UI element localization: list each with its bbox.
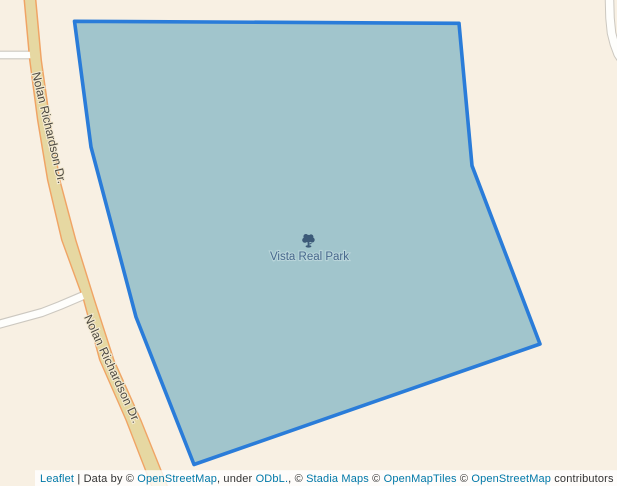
svg-text:Leaflet | Data by © OpenStreet: Leaflet | Data by © OpenStreetMap, under… [40,473,614,485]
svg-text:Vista Real Park: Vista Real Park [270,251,349,263]
